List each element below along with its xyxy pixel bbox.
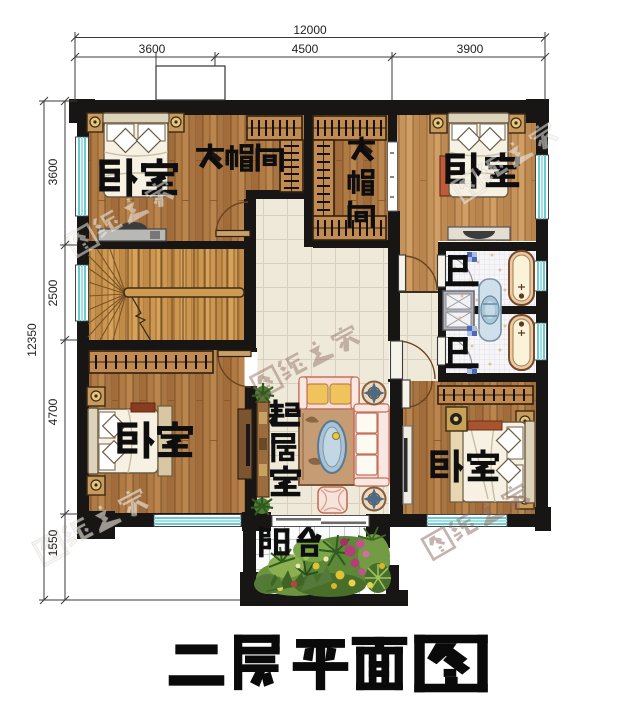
svg-text:12000: 12000 [293, 23, 327, 37]
svg-text:3600: 3600 [139, 42, 166, 56]
svg-text:1550: 1550 [46, 529, 60, 556]
svg-text:3600: 3600 [46, 158, 60, 185]
svg-text:4500: 4500 [292, 42, 319, 56]
svg-text:12350: 12350 [25, 323, 39, 357]
svg-text:2500: 2500 [46, 279, 60, 306]
svg-text:4700: 4700 [46, 398, 60, 425]
svg-text:3900: 3900 [457, 42, 484, 56]
